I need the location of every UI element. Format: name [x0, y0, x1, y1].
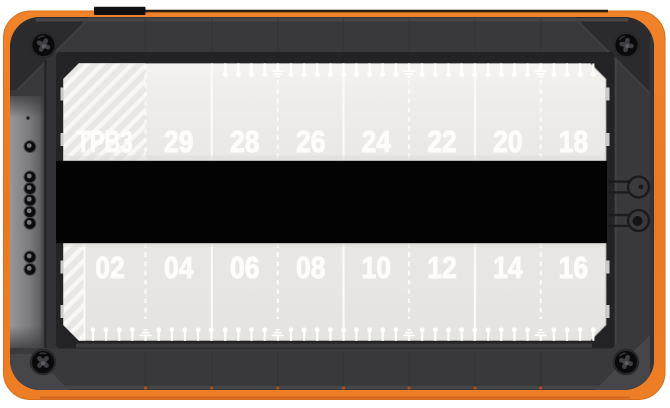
- svg-text:10: 10: [362, 251, 392, 285]
- svg-text:04: 04: [164, 251, 194, 285]
- svg-text:02: 02: [95, 251, 125, 285]
- svg-text:14: 14: [493, 251, 523, 285]
- svg-text:TPB3: TPB3: [76, 125, 132, 159]
- svg-text:08: 08: [296, 251, 326, 285]
- svg-text:12: 12: [427, 251, 457, 285]
- svg-text:16: 16: [559, 251, 589, 285]
- svg-text:29: 29: [164, 126, 194, 160]
- svg-text:20: 20: [493, 126, 523, 160]
- svg-text:24: 24: [362, 126, 392, 160]
- svg-text:06: 06: [230, 251, 260, 285]
- svg-text:26: 26: [296, 126, 326, 160]
- svg-text:22: 22: [427, 126, 457, 160]
- svg-text:28: 28: [230, 126, 260, 160]
- svg-text:18: 18: [559, 126, 589, 160]
